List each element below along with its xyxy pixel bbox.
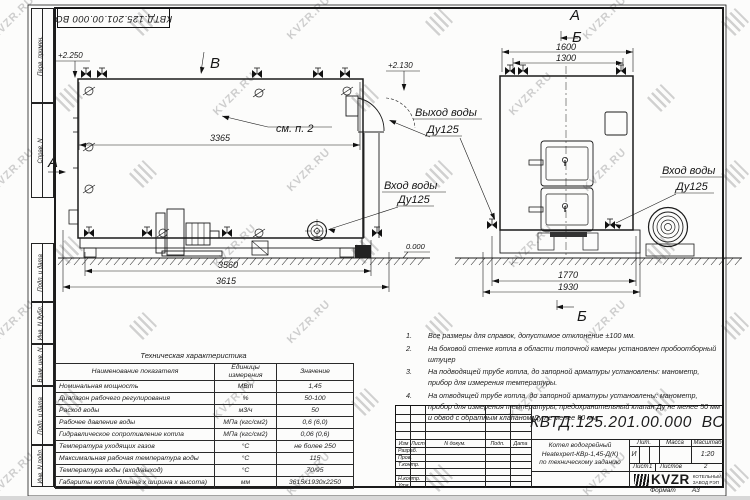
note-text: На подводящей трубе котла, до запорной а… [428,367,722,389]
title-block-line [396,454,531,455]
param-units: % [215,393,277,405]
param-name: Температура уходящих газов [56,441,215,453]
note-item: 3.На подводящей трубе котла, до запорной… [406,367,722,389]
inlet-water-dn: Ду125 [396,194,431,206]
note-number: 3. [406,367,428,389]
drawing-texts: В А +2.250 0.000 см. п. 2 3365 3560 3615… [47,7,715,325]
param-name: Диапазон рабочего регулирования [56,393,215,405]
valve-icon [252,68,262,78]
title-block-line [396,431,531,432]
param-value: 70/95 [277,465,354,477]
format-value: А3 [692,487,700,494]
boiler-base [500,230,640,253]
elevation-zero: 0.000 [406,242,426,251]
company-logo-row: KVZR КОТЕЛЬНЫЙ ЗАВОД РЭП [629,471,724,488]
elevation-flue: +2.130 [388,61,413,70]
param-units: °С [215,453,277,465]
sheet-value: 1 [649,464,652,470]
param-units: мм [215,477,277,489]
frame-strip-divider [42,345,43,385]
dim-1770: 1770 [558,270,578,280]
valve-icon [81,68,91,78]
param-units: МПа (кгс/см2) [215,429,277,441]
fan-blower [646,208,694,257]
param-name: Гидравлическое сопротивление котла [56,429,215,441]
doc-name-line3: по техническому заданию [539,459,620,468]
param-name: Расход воды [56,405,215,417]
param-value: 115 [277,453,354,465]
outlet-water-dn: Ду125 [425,124,460,136]
title-block-line [531,471,629,472]
sig-row-label: Разраб. [398,448,417,454]
title-block-line [655,463,656,471]
dim-1930: 1930 [558,282,578,292]
note-text: На боковой стенке котла в области топочн… [428,344,722,366]
param-value: не более 250 [277,441,354,453]
sheet-label: Лист [633,464,648,470]
top-stamp-text: КВТД.125.201.00.000 ВО [55,13,172,24]
title-block-line [639,446,640,463]
table-row: Температура воды (вход/выход)°С70/95 [56,465,354,477]
title-block: ИзмЛистN докум.Подп.ДатаРазраб.Пров.Т.ко… [395,405,723,487]
inlet-water-label: Вход воды [384,180,437,192]
dim-3615: 3615 [216,276,237,286]
frame-strip-label: Подп. и дата [38,254,44,292]
table-row: Номинальная мощностьМВт1,45 [56,381,354,393]
dim-3365: 3365 [210,133,231,143]
kvzr-logo-icon [634,474,649,486]
frame-strip-divider [42,9,43,102]
valve-icon [84,227,94,237]
param-name: Номинальная мощность [56,381,215,393]
valve-icon [222,227,232,237]
valve-icon [372,227,382,237]
table-row: Максимальная рабочая температура воды°С1… [56,453,354,465]
drawing-sheet: KVZR.RUKVZR.RUKVZR.RUKVZR.RUKVZR.RUKVZR.… [0,0,750,500]
pump-unit [156,209,222,256]
doc-name-line1: Котел водогрейный [549,442,612,451]
document-name: Котел водогрейный Heatexpert-КВр-1,45-Д(… [531,439,629,471]
param-value: 0,6 (6,0) [277,417,354,429]
param-value: 50 [277,405,354,417]
title-block-line [396,468,531,469]
title-block-line [629,446,724,447]
table-row: Габариты котла (длинна х ширина х высота… [56,477,354,489]
section-a-top-label: А [569,7,580,24]
upper-furnace-door [529,141,593,186]
top-reversed-stamp: КВТД.125.201.00.000 ВО [57,8,170,28]
param-name: Температура воды (вход/выход) [56,465,215,477]
frame-strip-divider [42,387,43,444]
title-block-line [649,446,650,463]
valve-icon [616,65,626,75]
doc-name-line2: Heatexpert-КВр-1,45-Д(К) [542,451,619,460]
param-units: МПа (кгс/см2) [215,417,277,429]
table-row: Диапазон рабочего регулирования%50-100 [56,393,354,405]
ground-hatching [58,258,741,265]
dim-3560: 3560 [218,260,238,270]
table-row: Температура уходящих газов°Сне более 250 [56,441,354,453]
inlet-water-right-label: Вход воды [662,165,715,177]
param-name: Габариты котла (длинна х ширина х высота… [56,477,215,489]
sig-header: Дата [510,441,531,447]
lit-label: Лит. [629,440,659,446]
dim-1300: 1300 [556,53,576,63]
sig-header: N докум. [425,441,485,447]
sig-header: Изм [397,441,410,447]
mass-label: Масса [659,440,691,446]
scale-label: Масштаб [691,440,724,446]
table-row: Рабочее давление водыМПа (кгс/см2)0,6 (6… [56,417,354,429]
valve-icon [518,65,528,75]
see-note-label: см. п. 2 [276,123,313,135]
format-note: Формат А3 [650,487,730,494]
company-name: КОТЕЛЬНЫЙ ЗАВОД РЭП [693,474,722,485]
param-name: Рабочее давление воды [56,417,215,429]
inlet-flange [305,219,329,243]
boiler-side-view [69,79,415,258]
lower-furnace-door [529,188,593,231]
tech-characteristics-table: Наименование показателя Единицы измерени… [55,363,354,489]
scale-value: 1:20 [691,451,724,458]
frame-strip-divider [42,303,43,343]
col-value-header: Значение [277,364,354,381]
table-row: Гидравлическое сопротивление котлаМПа (к… [56,429,354,441]
sig-row-label: Пров. [398,455,412,461]
leader-lines [48,31,722,310]
frame-strip-label: Справ. N [38,138,44,163]
valve-icon [605,219,615,229]
kvzr-logo-text: KVZR [651,472,690,487]
title-block-line [396,414,531,415]
param-units: °С [215,465,277,477]
sig-header: Подп. [485,441,510,447]
valve-icon [142,227,152,237]
section-b-bottom-label: Б [577,308,587,325]
col-units-header: Единицы измерения [215,364,277,381]
frame-strip-divider [42,104,43,197]
note-item: 1.Все размеры для справок, допустимое от… [406,331,722,342]
param-value: 1,45 [277,381,354,393]
frame-strip-divider [42,446,43,486]
lifting-lug-icons [83,87,353,237]
param-value: 50-100 [277,393,354,405]
valve-icons [81,65,626,237]
tech-table-title: Техническая характеристика [55,351,332,360]
dimension-lines [63,48,640,297]
format-label: Формат [650,487,676,494]
param-units: МВт [215,381,277,393]
frame-strip-label: Перв. примен. [38,36,44,76]
dim-1600: 1600 [556,42,576,52]
frame-strip-label: Инв. N подл. [38,448,44,483]
note-number: 2. [406,344,428,366]
sig-row-label: Утв. [398,483,410,489]
note-number: 1. [406,331,428,342]
frame-strip-label: Инв. N дубл. [38,306,44,341]
elevation-top: +2.250 [58,51,83,60]
param-name: Максимальная рабочая температура воды [56,453,215,465]
frame-strip-label: Взам. инв. N [38,348,44,383]
sheets-value: 2 [704,464,707,470]
valve-icon [313,68,323,78]
param-units: м3/ч [215,405,277,417]
sheets-label: Листов [660,464,682,470]
frame-strip-divider [42,244,43,301]
boiler-front-view [500,66,694,258]
valve-icon [97,68,107,78]
lit-value: И [629,451,639,458]
frame-strip-label: Подп. и дата [38,397,44,435]
inlet-water-right-dn: Ду125 [674,181,709,193]
page-edge [0,496,750,500]
note-text: Все размеры для справок, допустимое откл… [428,331,722,342]
peephole [605,112,627,135]
outlet-water-label: Выход воды [415,107,477,119]
sig-row-label: Т.контр. [398,462,419,468]
col-name-header: Наименование показателя [56,364,215,381]
sig-row-label: Н.контр. [398,476,420,482]
valve-icon [505,65,515,75]
view-b-label: В [210,55,220,72]
param-value: 0,06 (0,6) [277,429,354,441]
note-item: 2.На боковой стенке котла в области топо… [406,344,722,366]
valve-icon [487,219,497,229]
sig-header: Лист [411,441,425,447]
param-units: °С [215,441,277,453]
valve-icon [340,68,350,78]
title-block-line [396,422,531,423]
table-row: Расход водым3/ч50 [56,405,354,417]
param-value: 3615х1930х2250 [277,477,354,489]
document-designation: КВТД.125.201.00.000 ВО [531,406,724,439]
